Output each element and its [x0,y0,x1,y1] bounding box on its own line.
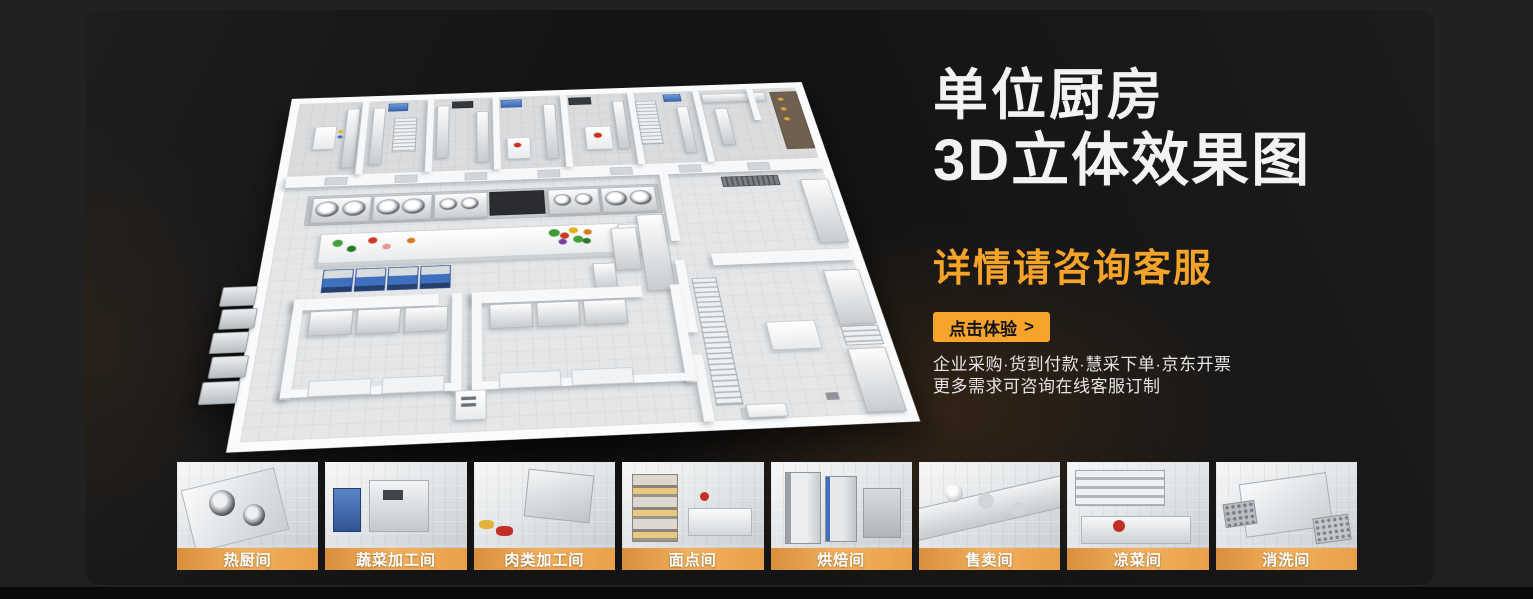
tray [571,367,635,386]
fryer [420,265,451,289]
eq [592,263,618,289]
bottom-divider-strip [0,587,1533,599]
chip [780,107,787,111]
a3 [479,520,494,529]
b [385,378,441,380]
wall [451,293,462,393]
b [385,378,441,380]
eqb [501,99,522,107]
thumbnail-label: 热厨间 [177,548,318,570]
b [312,381,369,383]
b [502,373,558,375]
eq [355,308,401,334]
a2 [688,508,752,536]
b [502,373,558,375]
eqw [507,137,532,159]
b [493,193,541,195]
cta-label: 点击体验 [949,315,1017,340]
b [574,370,630,372]
a3 [383,490,403,500]
fryer [321,269,354,293]
eqd [568,97,591,105]
b [502,373,558,375]
fryer [354,268,387,292]
chip [777,97,784,101]
b [312,381,369,383]
eq [489,303,533,329]
eqw [312,126,337,150]
a1 [333,488,361,532]
a3 [700,492,709,501]
rack [840,325,884,346]
cart [208,355,250,379]
thumbnail-cold-dish-room[interactable]: 凉菜间 [1067,462,1208,570]
eqd [452,101,473,108]
banner-card: 单位厨房 3D立体效果图 详情请咨询客服 点击体验 > 企业采购·货到付款·慧采… [85,10,1435,585]
thumbnail-hot-kitchen[interactable]: 热厨间 [177,462,318,570]
slot [461,396,476,400]
a1 [523,469,594,524]
eqw [746,403,789,418]
eq [536,301,581,327]
cta-button[interactable]: 点击体验 > [933,312,1050,342]
room-thumbnail-row: 热厨间 蔬菜加工间 肉类加工间 面点间 烘焙间 售卖间 [177,462,1357,570]
eq [800,179,849,243]
service-info: 企业采购·货到付款·慧采下单·京东开票 更多需求可咨询在线客服订制 [933,354,1231,398]
b [493,193,541,195]
eq [847,347,907,413]
cart [209,331,250,354]
tray [499,370,562,389]
b [493,193,541,195]
chip [784,117,791,121]
thumbnail-label: 面点间 [622,548,763,570]
thumbnail-vegetable-processing[interactable]: 蔬菜加工间 [325,462,466,570]
door [324,177,348,186]
b [493,193,541,195]
door [394,174,417,183]
a2 [209,490,235,516]
fryer [387,266,419,290]
cart [198,381,241,406]
wall [472,292,483,391]
banner-page: 单位厨房 3D立体效果图 详情请咨询客服 点击体验 > 企业采购·货到付款·慧采… [0,0,1533,599]
door [610,167,634,176]
b [574,370,630,372]
hero-title-line1: 单位厨房 [933,68,1165,123]
a1 [181,467,290,552]
thumbnail-baking-room[interactable]: 烘焙间 [771,462,912,570]
rack [392,118,418,153]
b [574,370,630,372]
thumbnail-label: 肉类加工间 [474,548,615,570]
door [537,169,560,178]
a1 [632,474,678,542]
thumbnail-serving-room[interactable]: 售卖间 [919,462,1060,570]
floor-plan-scene [203,14,919,460]
b [385,378,441,380]
floor-plan-3d [226,82,920,453]
wall [279,299,304,400]
a3 [243,504,265,526]
eq [307,310,354,337]
b [385,378,441,380]
thumbnail-label: 售卖间 [919,548,1060,570]
a2 [1081,516,1191,544]
wall [711,248,853,265]
a1 [919,475,1060,542]
a3 [863,488,901,538]
drain [825,392,840,400]
thumbnail-label: 蔬菜加工间 [325,548,466,570]
eqw [316,222,645,267]
b [502,373,558,375]
service-info-line1: 企业采购·货到付款·慧采下单·京东开票 [933,354,1231,376]
b [493,193,541,195]
door [746,162,770,170]
a3 [1312,514,1351,545]
eqw [765,320,822,350]
service-info-line2: 更多需求可咨询在线客服订制 [933,376,1231,398]
a2 [369,480,429,532]
b [574,370,630,372]
slot [461,403,476,407]
cart [219,286,258,307]
a2 [945,484,963,502]
eq [404,306,449,332]
a1 [785,472,821,544]
eq [436,106,450,159]
hero-subtitle: 详情请咨询客服 [933,250,1213,288]
cart [218,308,258,330]
b [502,373,558,375]
range [489,190,545,216]
b [312,381,369,383]
door [465,172,488,181]
eqb [662,94,681,102]
thumbnail-label: 消洗间 [1216,548,1357,570]
a2 [825,476,857,542]
hero-title-line2: 3D立体效果图 [933,132,1311,190]
thumbnail-label: 凉菜间 [1067,548,1208,570]
b [574,370,630,372]
a1 [1075,470,1165,506]
thumbnail-washing-room[interactable]: 消洗间 [1216,462,1357,570]
thumbnail-pastry-room[interactable]: 面点间 [622,462,763,570]
a2 [1222,500,1257,528]
rackd [721,175,781,187]
b [493,193,541,195]
door [678,164,702,173]
a2 [496,526,513,536]
eq [583,299,629,325]
tray [381,375,445,394]
arrow-right-icon: > [1024,317,1034,337]
eqw [584,126,614,150]
tray [307,378,372,397]
eq [476,111,489,162]
thumbnail-label: 烘焙间 [771,548,912,570]
b [312,381,369,383]
b [312,381,369,383]
eqb [388,103,408,111]
thumbnail-meat-processing[interactable]: 肉类加工间 [474,462,615,570]
eq [823,269,877,325]
b [385,378,441,380]
